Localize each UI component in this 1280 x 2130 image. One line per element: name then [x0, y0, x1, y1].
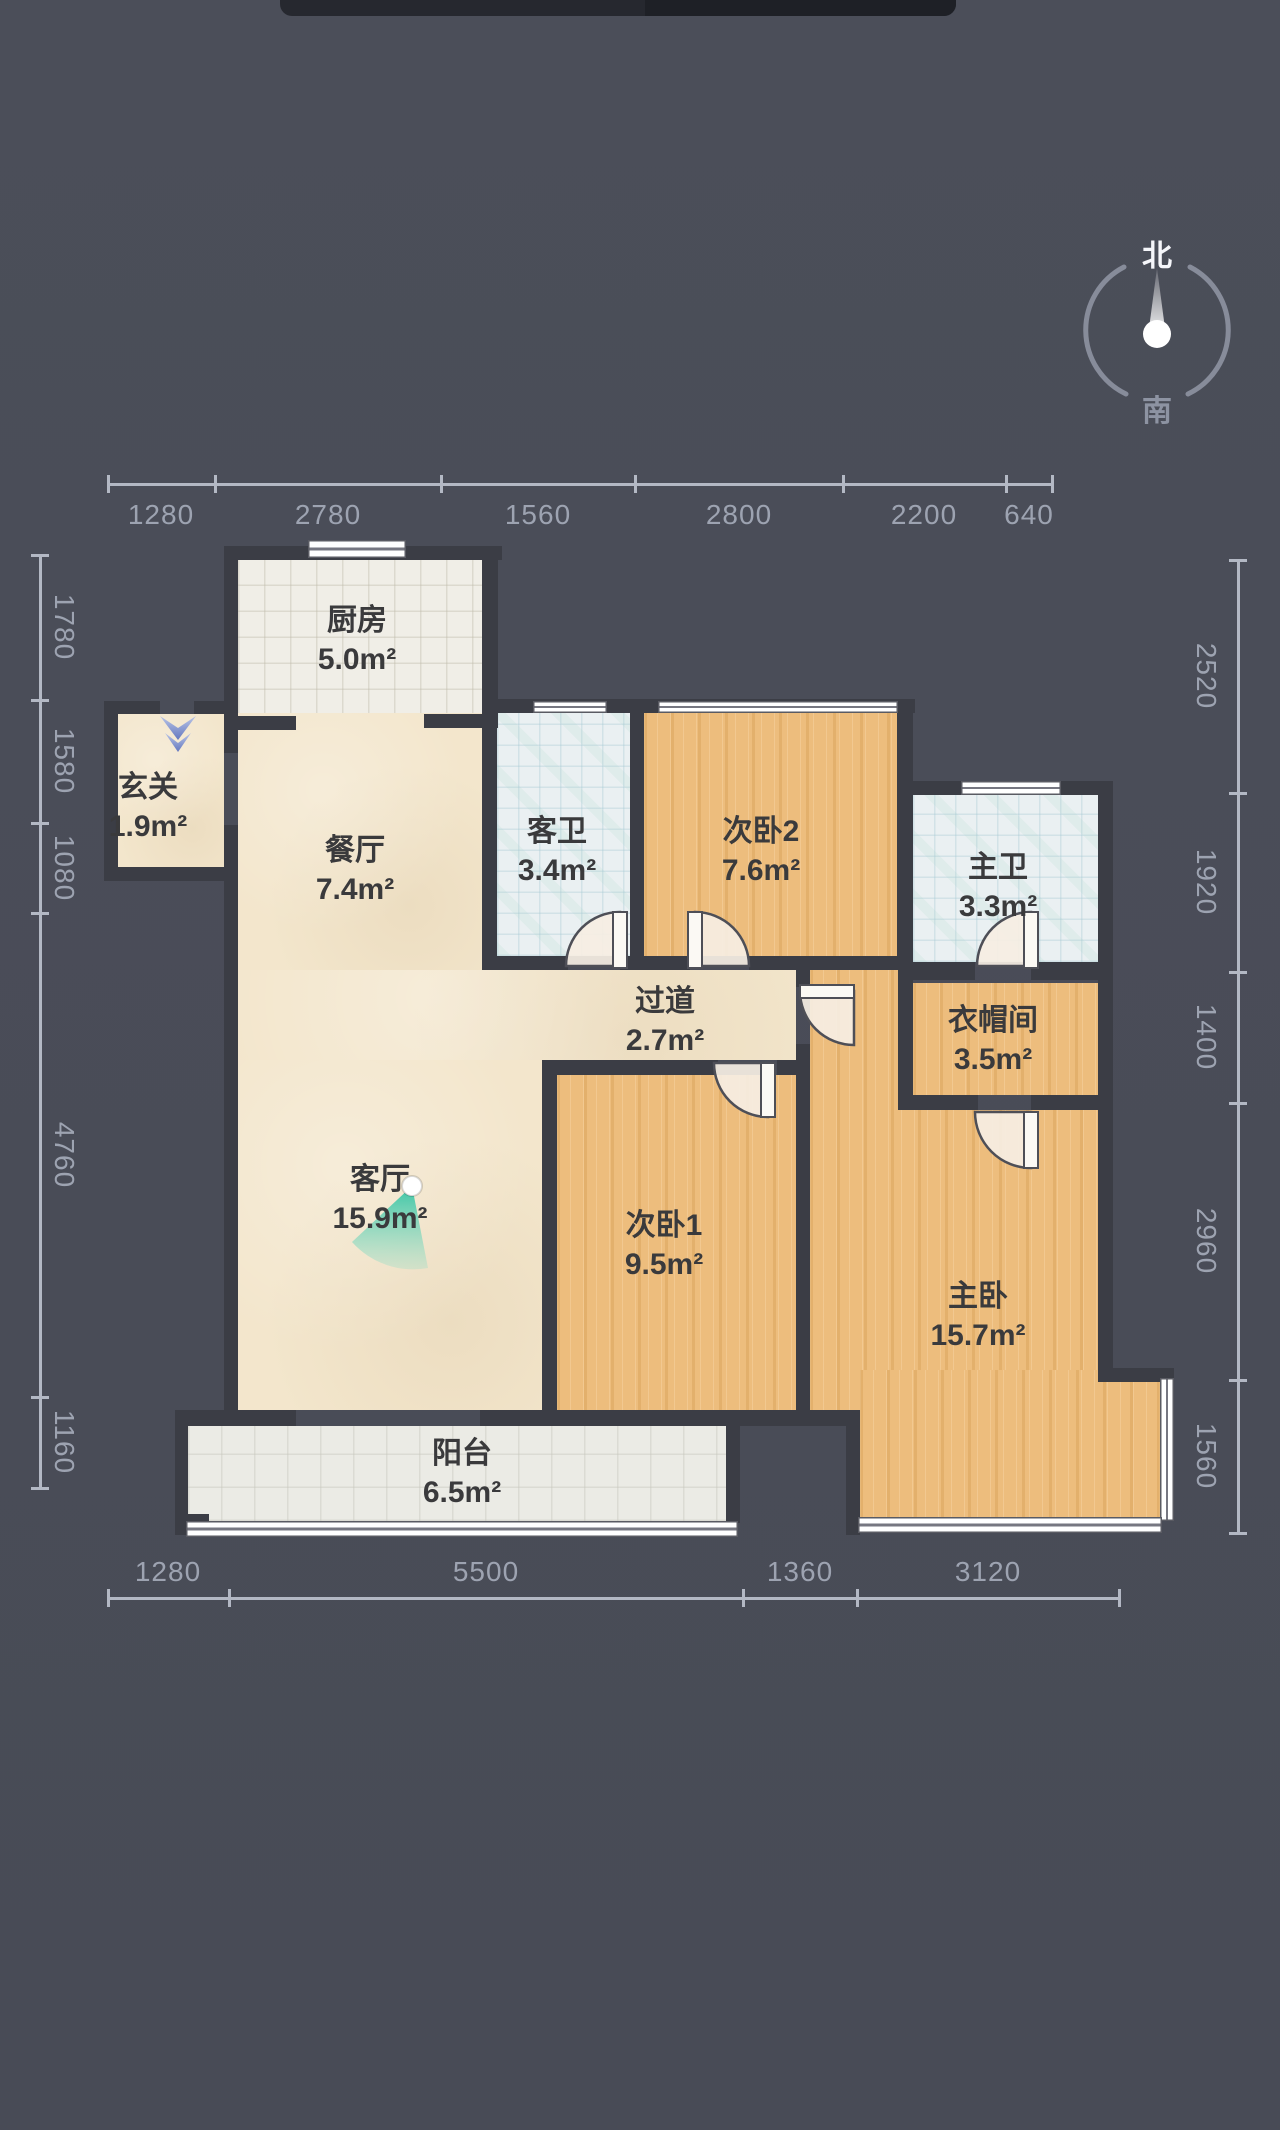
- dim-tick-bottom: [107, 1589, 110, 1607]
- door-closet-swing: [975, 1112, 1031, 1168]
- compass-ball: [1143, 320, 1171, 348]
- dim-tick-left: [31, 554, 49, 557]
- room-bedroom1-label: 次卧19.5m²: [625, 1206, 703, 1284]
- dim-label-left-1780: 1780: [48, 594, 80, 660]
- room-entry-label: 玄关1.9m²: [109, 768, 187, 846]
- room-living-name: 客厅: [332, 1160, 427, 1199]
- room-kitchen-label: 厨房5.0m²: [318, 601, 396, 679]
- room-guest-bath-area: 3.4m²: [518, 851, 596, 890]
- dim-label-left-4760: 4760: [48, 1122, 80, 1188]
- door-guest-bath-leaf: [613, 912, 627, 968]
- dim-label-right-1560: 1560: [1190, 1423, 1222, 1489]
- dim-label-right-2520: 2520: [1190, 643, 1222, 709]
- room-master-label: 主卧15.7m²: [930, 1277, 1025, 1355]
- dim-tick-right: [1229, 1102, 1247, 1105]
- dim-tick-top: [440, 475, 443, 493]
- dim-tick-bottom: [1118, 1589, 1121, 1607]
- room-living-label: 客厅15.9m²: [332, 1160, 427, 1238]
- room-master-bath-area: 3.3m²: [959, 887, 1037, 926]
- dim-label-top-2200: 2200: [891, 499, 957, 531]
- dim-tick-right: [1229, 792, 1247, 795]
- dim-tick-bottom: [742, 1589, 745, 1607]
- dim-label-top-2800: 2800: [706, 499, 772, 531]
- room-master-bath-name: 主卫: [959, 848, 1037, 887]
- room-balcony-area: 6.5m²: [423, 1473, 501, 1512]
- dim-label-bottom-5500: 5500: [453, 1556, 519, 1588]
- room-bedroom2-area: 7.6m²: [722, 851, 800, 890]
- dim-label-bottom-3120: 3120: [955, 1556, 1021, 1588]
- dim-label-top-1560: 1560: [505, 499, 571, 531]
- dim-tick-right: [1229, 971, 1247, 974]
- room-guest-bath-label: 客卫3.4m²: [518, 812, 596, 890]
- dim-tick-top: [1051, 475, 1054, 493]
- room-bedroom1-name: 次卧1: [625, 1206, 703, 1245]
- dim-line-right: [1237, 560, 1240, 1533]
- door-master-leaf: [800, 985, 854, 998]
- dim-label-top-1280: 1280: [128, 499, 194, 531]
- room-master-bath-label: 主卫3.3m²: [959, 848, 1037, 926]
- door-bedroom2-swing: [695, 912, 749, 966]
- compass-ring-arc: [1086, 267, 1126, 394]
- room-closet-label: 衣帽间3.5m²: [948, 1001, 1038, 1079]
- dim-tick-left: [31, 822, 49, 825]
- door-master-swing: [800, 991, 854, 1045]
- dim-tick-left: [31, 1487, 49, 1490]
- dim-tick-right: [1229, 1532, 1247, 1535]
- compass-north-label: 北: [1142, 231, 1172, 275]
- room-master-name: 主卧: [930, 1277, 1025, 1316]
- dim-label-bottom-1360: 1360: [767, 1556, 833, 1588]
- room-entry-area: 1.9m²: [109, 807, 187, 846]
- room-guest-bath-name: 客卫: [518, 812, 596, 851]
- dim-label-left-1580: 1580: [48, 728, 80, 794]
- room-kitchen-area: 5.0m²: [318, 640, 396, 679]
- room-corridor-label: 过道2.7m²: [626, 982, 704, 1060]
- room-bedroom2-label: 次卧27.6m²: [722, 812, 800, 890]
- room-dining-name: 餐厅: [316, 831, 394, 870]
- dim-tick-right: [1229, 1379, 1247, 1382]
- dim-tick-left: [31, 1396, 49, 1399]
- room-dining-area: 7.4m²: [316, 870, 394, 909]
- dim-label-right-1920: 1920: [1190, 849, 1222, 915]
- room-dining-label: 餐厅7.4m²: [316, 831, 394, 909]
- room-corridor-area: 2.7m²: [626, 1021, 704, 1060]
- door-guest-bath-swing: [566, 912, 620, 966]
- door-closet-leaf: [1024, 1112, 1038, 1168]
- dim-tick-top: [634, 475, 637, 493]
- room-bedroom2-name: 次卧2: [722, 812, 800, 851]
- room-corridor-name: 过道: [626, 982, 704, 1021]
- compass-ring-arc: [1188, 267, 1228, 394]
- entry-direction-arrow-icon: [160, 716, 196, 740]
- dim-label-right-2960: 2960: [1190, 1208, 1222, 1274]
- room-kitchen-name: 厨房: [318, 601, 396, 640]
- room-closet-name: 衣帽间: [948, 1001, 1038, 1040]
- room-entry-name: 玄关: [109, 768, 187, 807]
- dim-label-top-2780: 2780: [295, 499, 361, 531]
- floorplan-screen: 北 南 128027801560280022006401280550013603…: [0, 0, 1280, 2130]
- door-bedroom2-leaf: [688, 912, 702, 968]
- door-bedroom1-leaf: [761, 1063, 775, 1117]
- dim-tick-right: [1229, 559, 1247, 562]
- dim-tick-bottom: [856, 1589, 859, 1607]
- dim-label-right-1400: 1400: [1190, 1004, 1222, 1070]
- dim-line-left: [39, 555, 42, 1488]
- dim-label-bottom-1280: 1280: [135, 1556, 201, 1588]
- dim-tick-top: [1005, 475, 1008, 493]
- dim-label-top-640: 640: [1004, 499, 1054, 531]
- room-closet-area: 3.5m²: [948, 1040, 1038, 1079]
- room-living-area: 15.9m²: [332, 1199, 427, 1238]
- room-balcony-label: 阳台6.5m²: [423, 1434, 501, 1512]
- dim-tick-top: [842, 475, 845, 493]
- dim-tick-bottom: [228, 1589, 231, 1607]
- compass-south-label: 南: [1142, 386, 1172, 430]
- room-balcony-name: 阳台: [423, 1434, 501, 1473]
- dim-tick-top: [107, 475, 110, 493]
- plan-overlay-graphics: [0, 0, 1280, 2130]
- dim-tick-left: [31, 912, 49, 915]
- dim-line-top: [108, 483, 1052, 486]
- dim-label-left-1080: 1080: [48, 835, 80, 901]
- room-bedroom1-area: 9.5m²: [625, 1245, 703, 1284]
- room-master-area: 15.7m²: [930, 1316, 1025, 1355]
- dim-line-bottom: [108, 1597, 1119, 1600]
- dim-tick-left: [31, 699, 49, 702]
- dim-tick-top: [214, 475, 217, 493]
- dim-label-left-1160: 1160: [48, 1410, 80, 1474]
- door-bedroom1-swing: [714, 1063, 768, 1117]
